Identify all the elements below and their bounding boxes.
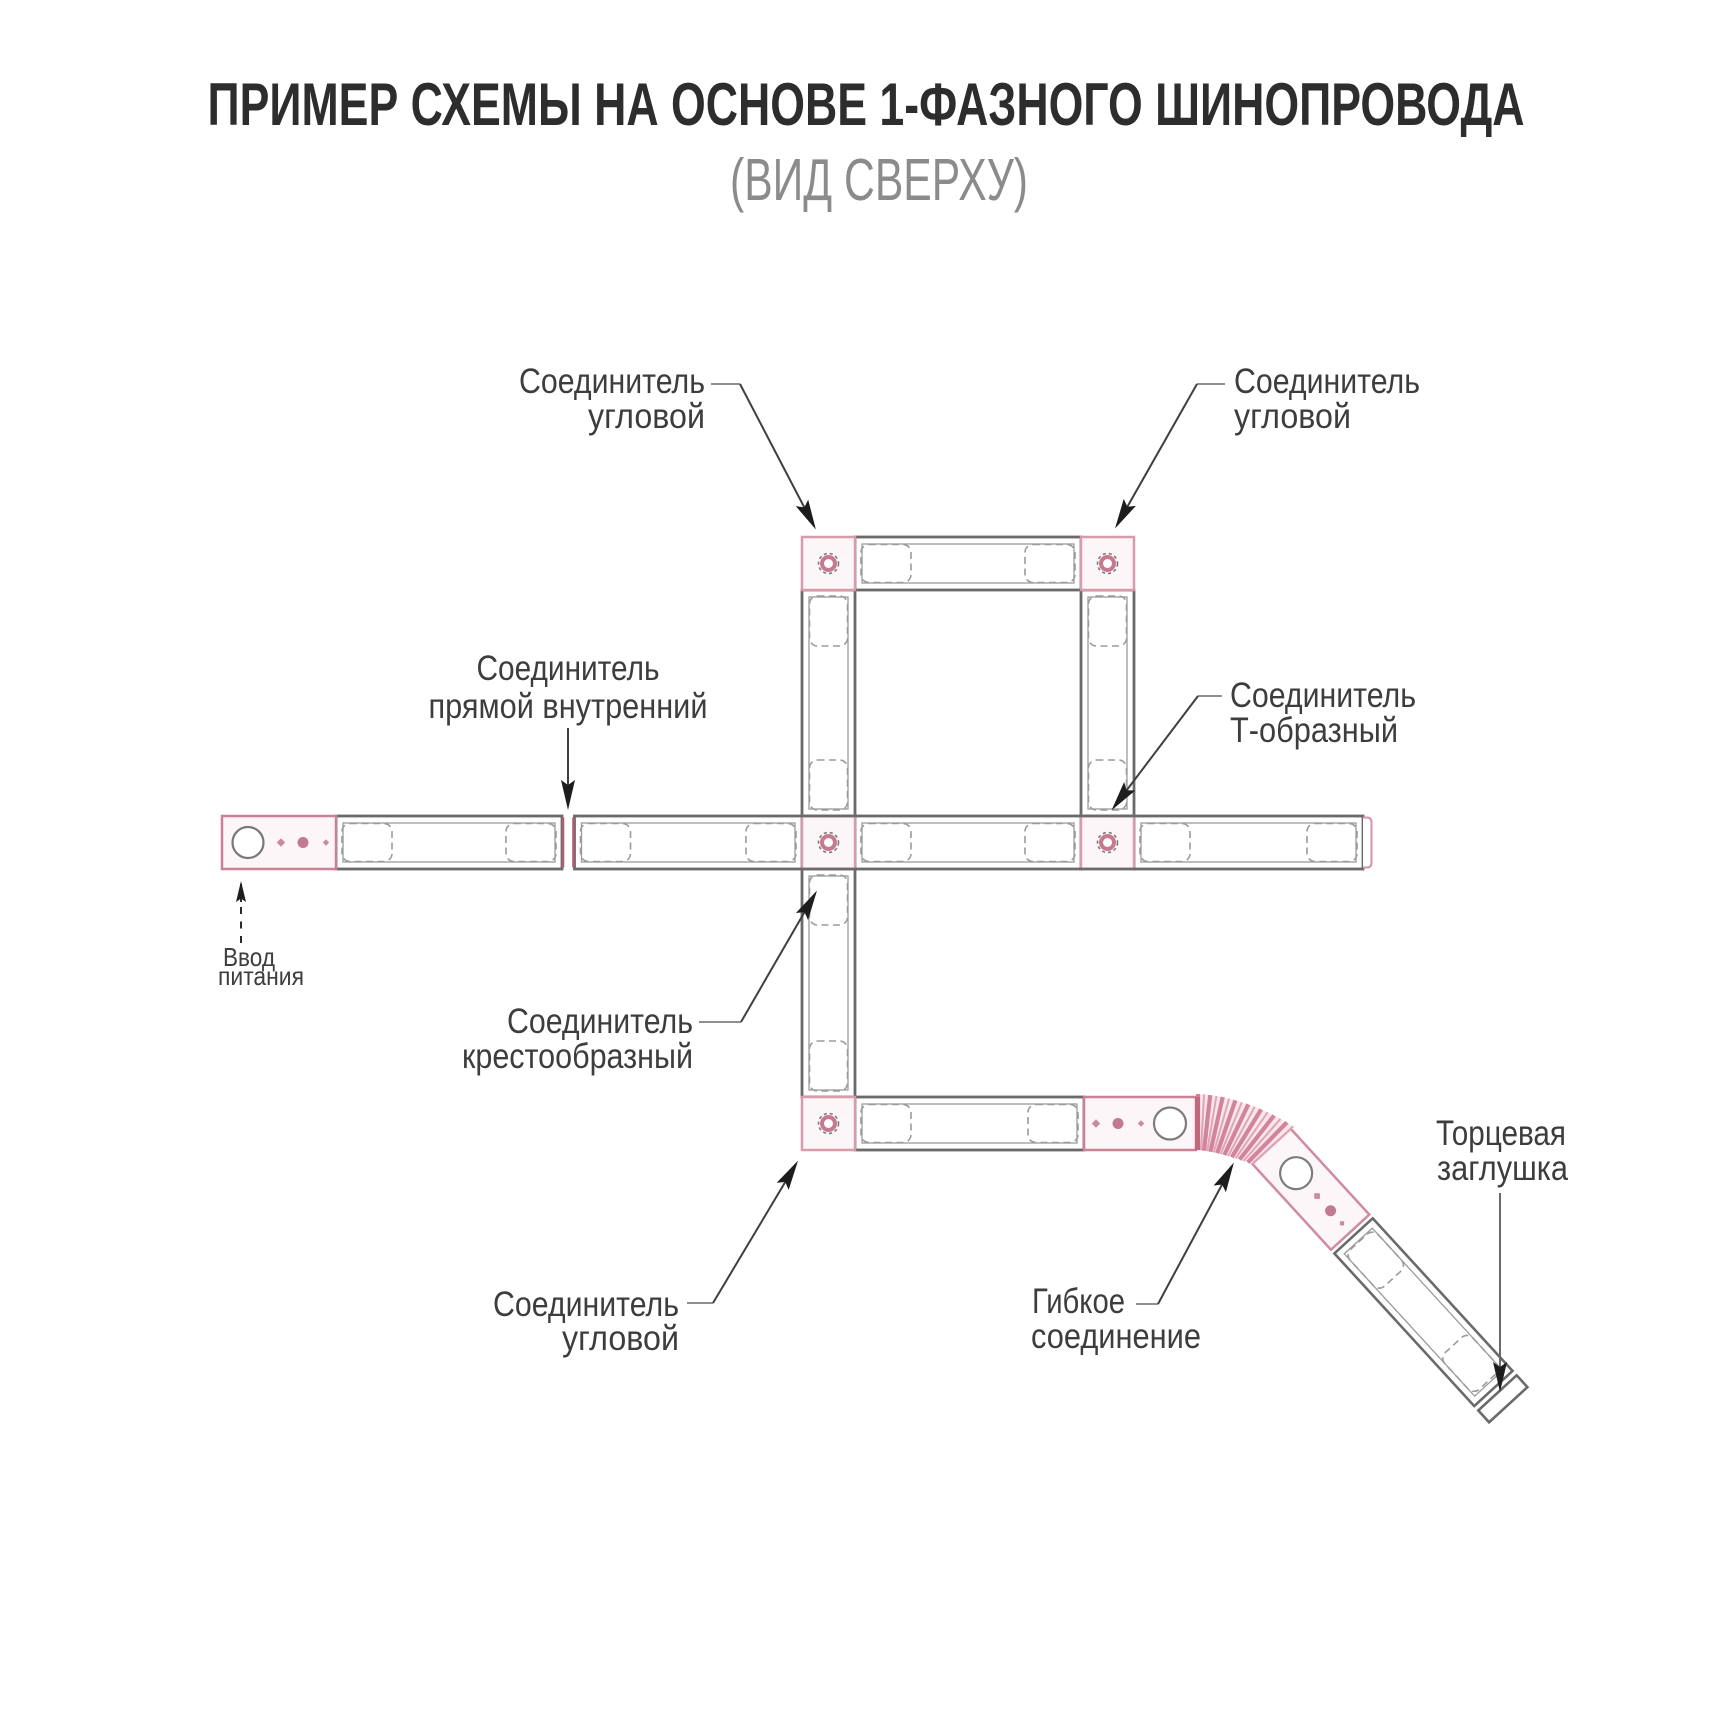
svg-text:заглушка: заглушка (1437, 1149, 1568, 1188)
svg-text:Торцевая: Торцевая (1436, 1114, 1566, 1153)
svg-text:Соединитель: Соединитель (1230, 676, 1416, 715)
svg-text:Т-образный: Т-образный (1230, 711, 1398, 750)
svg-text:крестообразный: крестообразный (462, 1037, 693, 1076)
svg-text:питания: питания (218, 961, 304, 991)
svg-text:соединение: соединение (1031, 1317, 1201, 1356)
svg-text:(ВИД СВЕРХУ): (ВИД СВЕРХУ) (730, 147, 1028, 213)
svg-text:прямой внутренний: прямой внутренний (429, 687, 708, 726)
svg-text:Соединитель: Соединитель (507, 1002, 693, 1041)
svg-text:Соединитель: Соединитель (477, 649, 660, 688)
svg-text:Соединитель: Соединитель (519, 362, 705, 401)
svg-text:Соединитель: Соединитель (1234, 362, 1420, 401)
svg-text:Гибкое: Гибкое (1032, 1282, 1125, 1321)
svg-text:угловой: угловой (588, 397, 705, 436)
svg-text:угловой: угловой (1234, 397, 1351, 436)
svg-text:ПРИМЕР СХЕМЫ НА ОСНОВЕ 1-ФАЗНО: ПРИМЕР СХЕМЫ НА ОСНОВЕ 1-ФАЗНОГО ШИНОПРО… (208, 71, 1525, 138)
svg-text:угловой: угловой (562, 1319, 679, 1358)
